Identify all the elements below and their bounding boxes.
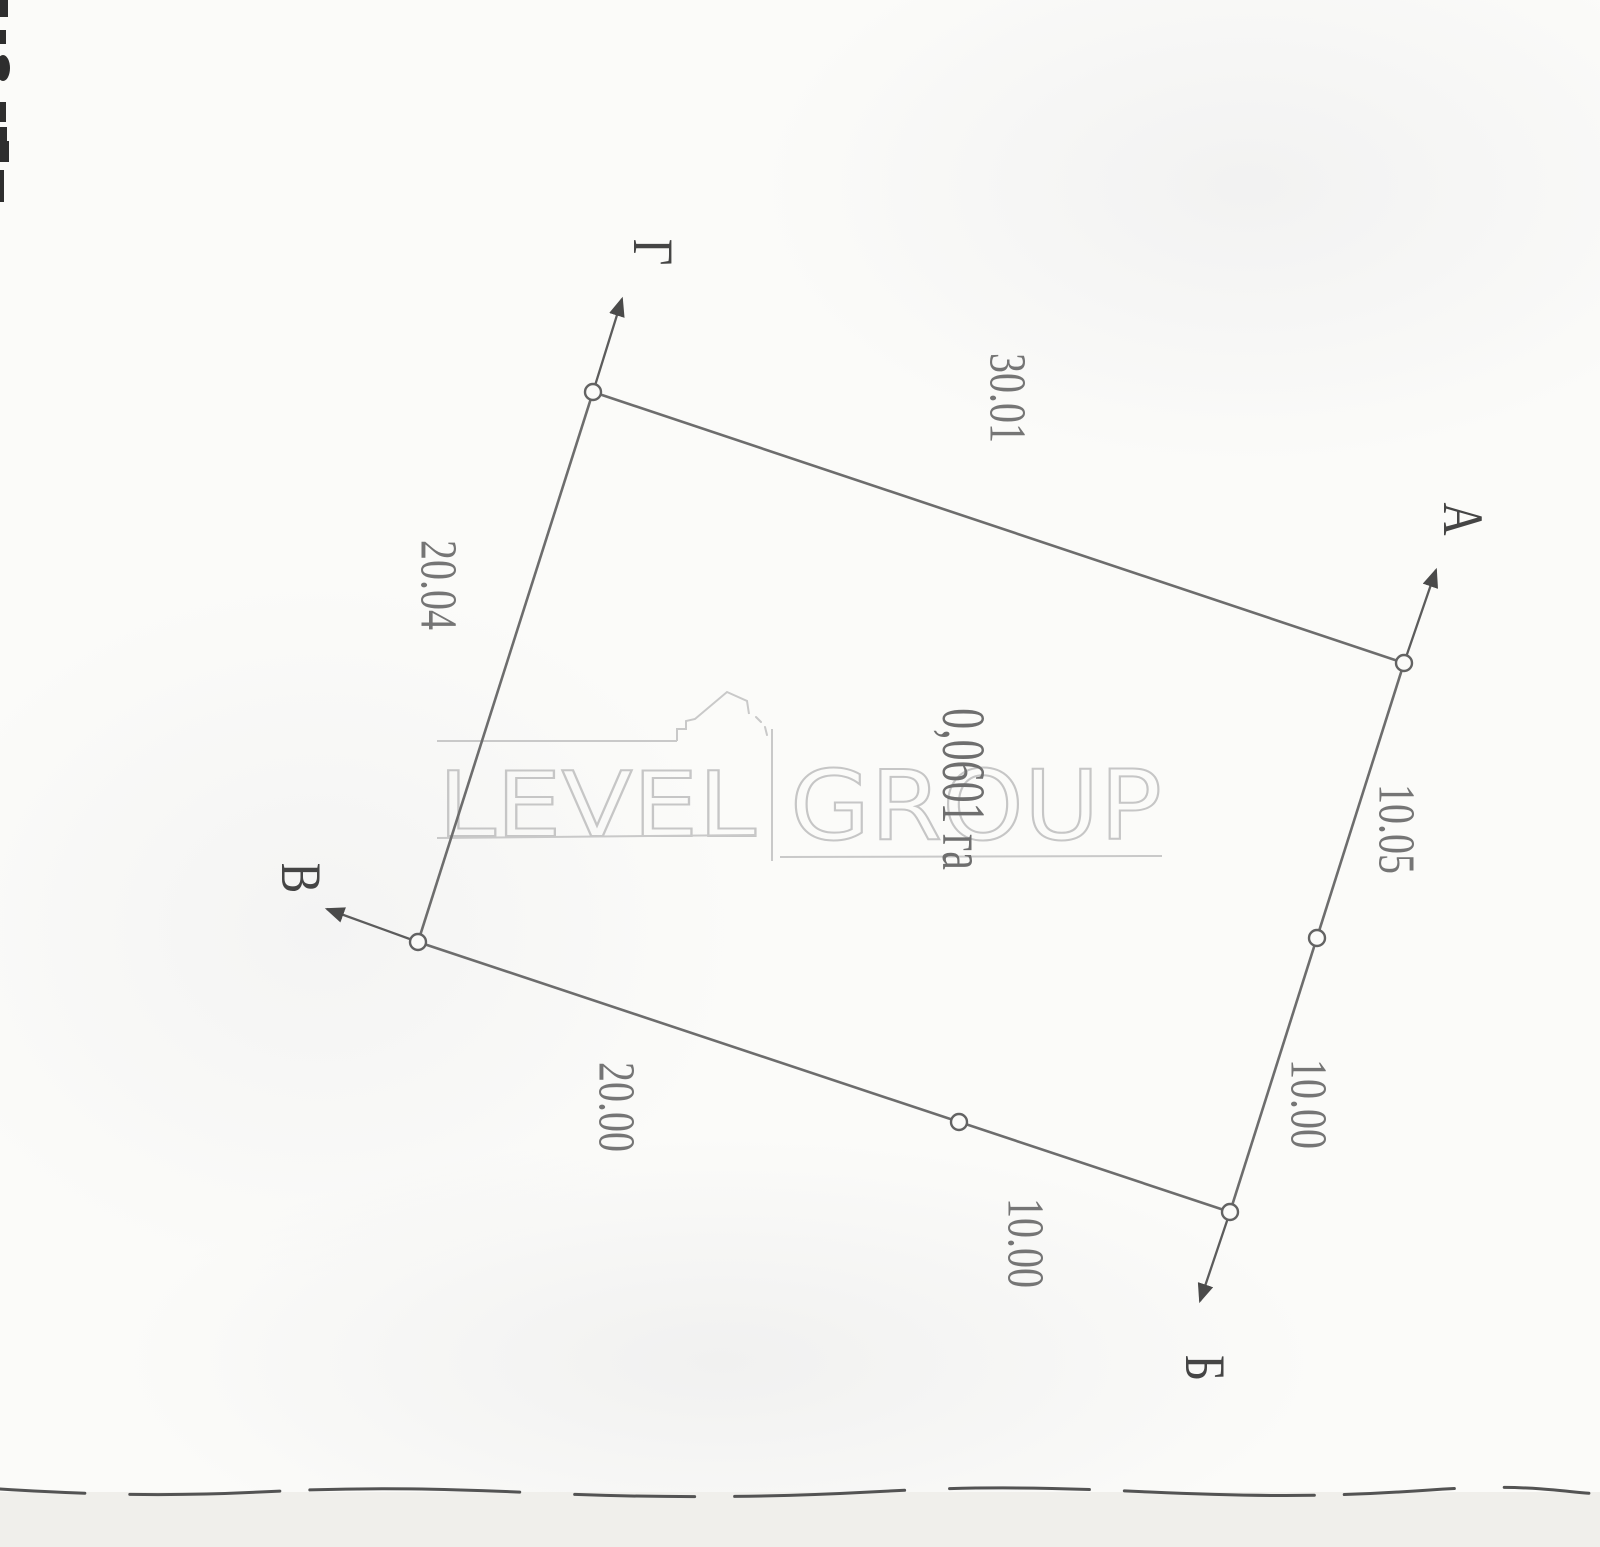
arrow-corner-v xyxy=(327,909,418,942)
bottom-paper-band xyxy=(0,1492,1600,1547)
dim-label-right-lower: 10.00 xyxy=(1279,1059,1336,1149)
dim-label-left: 20.04 xyxy=(409,540,466,630)
dim-label-right-upper: 10.05 xyxy=(1367,784,1424,874)
vertex-point-g xyxy=(585,384,601,400)
watermark-word-level: LEVEL xyxy=(438,753,756,858)
arrow-corner-g xyxy=(593,299,622,392)
vertex-point-b xyxy=(1222,1204,1238,1220)
corner-label-g: Г xyxy=(621,239,684,266)
scanned-survey-plan-page: LEVEL GROUP xyxy=(0,0,1600,1547)
arrow-corner-b xyxy=(1200,1212,1230,1301)
building-roof-icon-dashes xyxy=(756,717,767,735)
building-roof-icon xyxy=(677,692,749,741)
midpoint-bottom-edge xyxy=(951,1114,967,1130)
scan-edge-marks xyxy=(0,0,10,202)
boundary-edge-left xyxy=(418,392,593,942)
vertex-point-v xyxy=(410,934,426,950)
midpoint-right-edge xyxy=(1309,930,1325,946)
level-group-watermark: LEVEL GROUP xyxy=(437,692,1162,862)
paper-bottom-band xyxy=(0,1487,1600,1547)
land-plot-diagram: LEVEL GROUP xyxy=(0,0,1600,1547)
corner-label-a: А xyxy=(1431,502,1494,536)
dim-label-bottom-left: 20.00 xyxy=(587,1062,644,1152)
corner-label-v: В xyxy=(269,863,332,894)
arrow-corner-a xyxy=(1404,570,1436,663)
vertex-point-a xyxy=(1396,655,1412,671)
dim-label-top: 30.01 xyxy=(978,353,1035,443)
area-label: 0,0601 га xyxy=(929,708,997,870)
boundary-edge-bottom xyxy=(418,942,1230,1212)
dim-label-bottom-right: 10.00 xyxy=(996,1198,1053,1288)
corner-label-b: Б xyxy=(1173,1355,1236,1381)
